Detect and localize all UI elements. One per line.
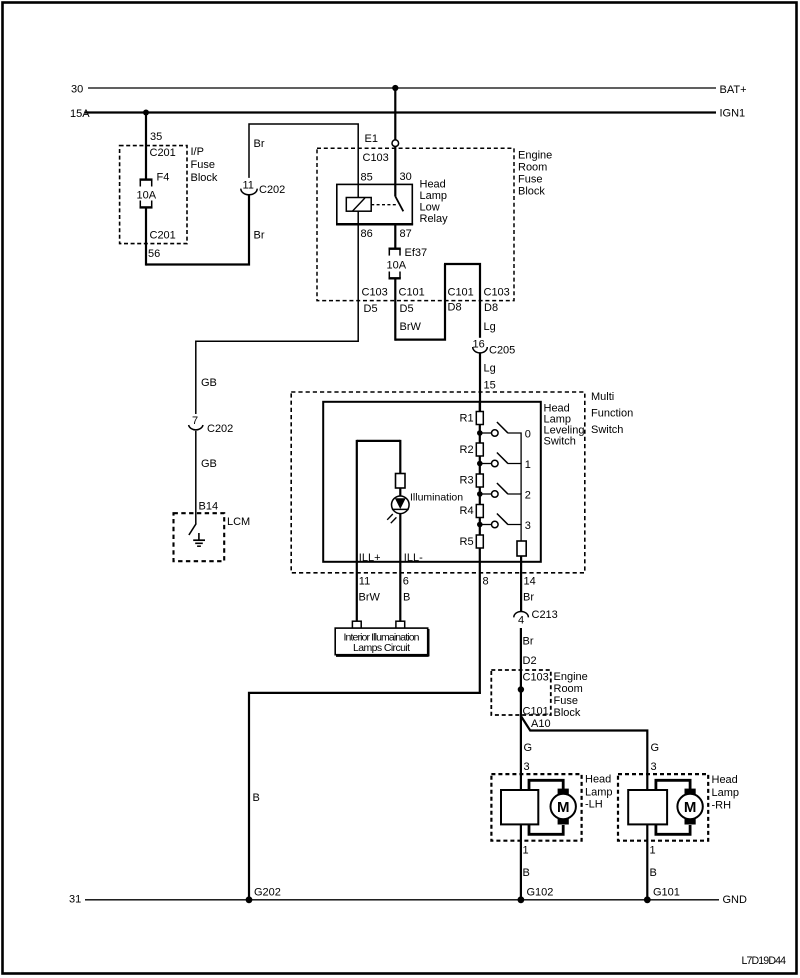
- svg-text:Room: Room: [554, 683, 583, 695]
- svg-text:1: 1: [525, 459, 531, 471]
- svg-text:Lamp: Lamp: [585, 787, 613, 799]
- svg-text:F4: F4: [157, 172, 170, 184]
- svg-text:B: B: [403, 592, 410, 604]
- svg-text:1: 1: [650, 845, 656, 857]
- svg-text:C205: C205: [489, 345, 515, 357]
- svg-text:16: 16: [473, 339, 485, 351]
- svg-text:56: 56: [148, 248, 160, 260]
- svg-text:Lamp: Lamp: [712, 787, 740, 799]
- svg-text:Ef37: Ef37: [405, 247, 428, 259]
- svg-text:G101: G101: [653, 887, 680, 899]
- svg-text:R2: R2: [460, 444, 474, 456]
- svg-text:2: 2: [525, 490, 531, 502]
- svg-text:Multi: Multi: [591, 391, 614, 403]
- svg-text:14: 14: [524, 576, 536, 588]
- svg-text:GND: GND: [723, 894, 748, 906]
- svg-text:C201: C201: [150, 230, 176, 242]
- svg-text:87: 87: [400, 228, 412, 240]
- svg-text:C103: C103: [362, 287, 388, 299]
- svg-text:15: 15: [484, 380, 496, 392]
- svg-text:Low: Low: [420, 202, 440, 214]
- svg-text:Fuse: Fuse: [554, 695, 578, 707]
- svg-text:GB: GB: [201, 458, 217, 470]
- svg-text:D5: D5: [400, 303, 414, 315]
- svg-text:Block: Block: [518, 186, 545, 198]
- svg-text:85: 85: [361, 172, 373, 184]
- svg-text:0: 0: [525, 429, 531, 441]
- svg-text:Relay: Relay: [420, 213, 449, 225]
- svg-text:BAT+: BAT+: [720, 84, 747, 96]
- svg-text:4: 4: [518, 615, 524, 627]
- svg-text:3: 3: [524, 761, 530, 773]
- svg-text:D8: D8: [484, 302, 498, 314]
- svg-text:Illumination: Illumination: [410, 492, 463, 504]
- svg-text:C202: C202: [259, 184, 285, 196]
- svg-text:31: 31: [69, 894, 81, 906]
- svg-text:M: M: [684, 799, 697, 816]
- svg-text:B: B: [650, 867, 657, 879]
- svg-text:Head: Head: [712, 774, 738, 786]
- svg-text:GB: GB: [201, 377, 217, 389]
- svg-text:-RH: -RH: [712, 800, 732, 812]
- svg-text:C103: C103: [363, 152, 389, 164]
- svg-text:-LH: -LH: [585, 799, 603, 811]
- svg-text:G: G: [651, 742, 660, 754]
- svg-text:Br: Br: [523, 592, 534, 604]
- svg-text:Lg: Lg: [484, 321, 496, 333]
- svg-text:C213: C213: [532, 609, 558, 621]
- svg-text:15A: 15A: [70, 108, 90, 120]
- svg-text:30: 30: [400, 171, 412, 183]
- svg-text:Head: Head: [585, 774, 611, 786]
- svg-text:C101: C101: [448, 287, 474, 299]
- svg-text:C103: C103: [484, 287, 510, 299]
- svg-text:R3: R3: [460, 475, 474, 487]
- svg-text:7: 7: [192, 415, 198, 427]
- svg-text:L7D19D44: L7D19D44: [742, 955, 787, 967]
- svg-text:R1: R1: [460, 413, 474, 425]
- svg-text:I/P: I/P: [191, 146, 204, 158]
- svg-text:M: M: [557, 799, 570, 816]
- svg-text:Engine: Engine: [554, 671, 588, 683]
- svg-text:Fuse: Fuse: [191, 159, 215, 171]
- svg-text:G102: G102: [527, 887, 554, 899]
- svg-text:E1: E1: [365, 133, 378, 145]
- svg-text:B: B: [523, 867, 530, 879]
- svg-text:Br: Br: [254, 138, 265, 150]
- svg-text:10A: 10A: [387, 260, 407, 272]
- svg-text:Head: Head: [420, 179, 446, 191]
- svg-text:Switch: Switch: [544, 435, 576, 447]
- svg-text:Block: Block: [191, 172, 218, 184]
- svg-text:Switch: Switch: [591, 424, 623, 436]
- svg-text:86: 86: [361, 228, 373, 240]
- svg-text:35: 35: [150, 131, 162, 143]
- svg-text:G: G: [524, 742, 533, 754]
- svg-text:Function: Function: [591, 408, 633, 420]
- svg-text:R4: R4: [460, 505, 474, 517]
- svg-text:C202: C202: [207, 423, 233, 435]
- svg-text:R5: R5: [460, 536, 474, 548]
- svg-text:A10: A10: [531, 718, 551, 730]
- svg-text:Br: Br: [254, 230, 265, 242]
- svg-text:Lamps Circuit: Lamps Circuit: [353, 642, 410, 654]
- svg-text:D2: D2: [523, 655, 537, 667]
- svg-text:Engine: Engine: [518, 150, 552, 162]
- svg-text:BrW: BrW: [400, 321, 422, 333]
- svg-text:3: 3: [525, 520, 531, 532]
- svg-text:Lg: Lg: [484, 363, 496, 375]
- svg-text:C201: C201: [150, 147, 176, 159]
- svg-text:30: 30: [71, 84, 83, 96]
- svg-text:Block: Block: [554, 707, 581, 719]
- svg-text:8: 8: [483, 576, 489, 588]
- svg-text:B: B: [253, 792, 260, 804]
- svg-text:Room: Room: [518, 162, 547, 174]
- svg-text:G202: G202: [254, 887, 281, 899]
- svg-text:C103: C103: [523, 672, 549, 684]
- svg-text:ILL+: ILL+: [359, 552, 381, 564]
- svg-text:Fuse: Fuse: [518, 174, 542, 186]
- svg-text:Br: Br: [523, 636, 534, 648]
- svg-text:ILL-: ILL-: [404, 552, 423, 564]
- svg-text:10A: 10A: [137, 190, 157, 202]
- svg-text:3: 3: [651, 761, 657, 773]
- svg-text:6: 6: [403, 576, 409, 588]
- svg-text:LCM: LCM: [227, 516, 250, 528]
- svg-text:Lamp: Lamp: [420, 190, 448, 202]
- svg-text:11: 11: [359, 576, 370, 588]
- svg-text:BrW: BrW: [359, 592, 381, 604]
- svg-text:IGN1: IGN1: [720, 108, 746, 120]
- svg-text:D8: D8: [448, 302, 462, 314]
- svg-text:C101: C101: [523, 706, 549, 718]
- svg-text:11: 11: [243, 180, 254, 192]
- svg-text:D5: D5: [364, 303, 378, 315]
- svg-text:C101: C101: [399, 287, 425, 299]
- svg-text:B14: B14: [199, 501, 219, 513]
- svg-text:1: 1: [523, 845, 529, 857]
